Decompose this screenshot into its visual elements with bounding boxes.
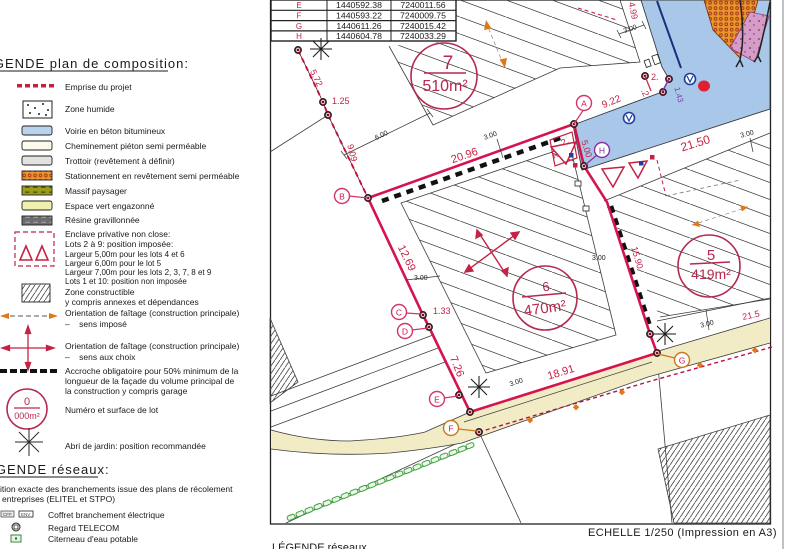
svg-text:2.: 2.	[651, 72, 659, 82]
svg-text:A: A	[581, 99, 587, 109]
svg-text:Accroche obligatoire pour 50%: Accroche obligatoire pour 50% minimum de…	[65, 366, 239, 376]
svg-text:E: E	[296, 1, 301, 10]
svg-text:ENV: ENV	[21, 512, 30, 517]
svg-text:longueur de la façade du volum: longueur de la façade du volume principa…	[65, 376, 234, 386]
svg-text:CFF: CFF	[3, 512, 12, 517]
svg-text:Largeur 6,00m pour le lot 5: Largeur 6,00m pour le lot 5	[65, 259, 162, 268]
svg-text:Stationnement en revêtement se: Stationnement en revêtement semi perméab…	[65, 171, 240, 181]
svg-text:Enclave privative non close:: Enclave privative non close:	[65, 229, 170, 239]
svg-text:1.33: 1.33	[433, 306, 451, 316]
svg-text:Numéro et surface de lot: Numéro et surface de lot	[65, 405, 159, 415]
svg-text:7240011.56: 7240011.56	[400, 0, 445, 10]
svg-text:1440604.78: 1440604.78	[336, 31, 382, 41]
svg-text:ition exacte des branchements: ition exacte des branchements issue des …	[0, 484, 233, 494]
svg-text:ECHELLE 1/250 (Impression en A: ECHELLE 1/250 (Impression en A3)	[588, 527, 777, 539]
svg-text:7: 7	[443, 53, 454, 74]
svg-text:G: G	[296, 22, 302, 31]
svg-text:Abri de jardin: position recom: Abri de jardin: position recommandée	[65, 441, 206, 451]
svg-text:LÉGENDE plan de composition:: LÉGENDE plan de composition:	[0, 56, 189, 71]
svg-text:Regard TELECOM: Regard TELECOM	[48, 523, 119, 533]
svg-text:Lots 1 et 10: position non imp: Lots 1 et 10: position non imposée	[65, 277, 187, 286]
svg-text:E: E	[434, 395, 440, 405]
svg-text:1440593.22: 1440593.22	[336, 11, 382, 21]
svg-text:1440611.26: 1440611.26	[336, 21, 381, 31]
svg-text:3.00: 3.00	[592, 255, 606, 262]
svg-text:LÉGENDE réseaux: LÉGENDE réseaux	[272, 541, 367, 549]
svg-text:entreprises (ELITEL et STPO): entreprises (ELITEL et STPO)	[2, 494, 115, 504]
svg-text:7240033.29: 7240033.29	[400, 31, 446, 41]
svg-text:C: C	[396, 308, 402, 318]
svg-text:Orientation de faîtage (constr: Orientation de faîtage (construction pri…	[65, 341, 240, 351]
svg-text:5: 5	[707, 247, 715, 264]
svg-text:Espace vert engazonné: Espace vert engazonné	[65, 201, 155, 211]
svg-text:Trottoir (revêtement à définir: Trottoir (revêtement à définir)	[65, 156, 175, 166]
svg-text:Cheminement piéton semi perméa: Cheminement piéton semi perméable	[65, 141, 207, 151]
svg-text:1.25: 1.25	[332, 96, 350, 106]
svg-text:0: 0	[24, 396, 30, 408]
svg-text:Zone constructible: Zone constructible	[65, 287, 135, 297]
svg-text:Orientation de faîtage (constr: Orientation de faîtage (construction pri…	[65, 308, 240, 318]
svg-text:– sens imposé: – sens imposé	[65, 319, 127, 329]
svg-text:510m²: 510m²	[422, 78, 468, 95]
svg-text:D: D	[402, 327, 408, 337]
svg-text:000m²: 000m²	[14, 411, 40, 421]
svg-text:1440592.38: 1440592.38	[336, 0, 382, 10]
svg-text:Lots 2 à 9: position imposée:: Lots 2 à 9: position imposée:	[65, 239, 173, 249]
svg-text:7240009.75: 7240009.75	[400, 11, 446, 21]
svg-text:Coffret branchement électrique: Coffret branchement électrique	[48, 510, 165, 520]
svg-text:7240015.42: 7240015.42	[400, 21, 446, 31]
svg-text:LÉGENDE réseaux:: LÉGENDE réseaux:	[0, 462, 110, 477]
svg-text:F: F	[297, 12, 302, 21]
svg-text:Résine gravillonnée: Résine gravillonnée	[65, 215, 140, 225]
svg-text:la construction y compris gara: la construction y compris garage	[65, 386, 188, 396]
svg-text:Zone humide: Zone humide	[65, 104, 115, 114]
svg-text:419m²: 419m²	[691, 266, 731, 282]
svg-text:Voirie en béton bitumineux: Voirie en béton bitumineux	[65, 126, 166, 136]
svg-text:B: B	[339, 192, 345, 202]
svg-text:Largeur 7,00m pour les lots 2,: Largeur 7,00m pour les lots 2, 3, 7, 8 e…	[65, 268, 212, 277]
svg-text:Largeur 5,00m pour les lots 4: Largeur 5,00m pour les lots 4 et 6	[65, 250, 185, 259]
svg-text:Emprise du projet: Emprise du projet	[65, 82, 132, 92]
svg-text:y compris annexes et dépendanc: y compris annexes et dépendances	[65, 297, 199, 307]
svg-text:H: H	[296, 32, 302, 41]
svg-text:Massif paysager: Massif paysager	[65, 186, 127, 196]
svg-text:F: F	[448, 424, 453, 434]
svg-text:– sens aux choix: – sens aux choix	[65, 352, 136, 362]
svg-text:H: H	[599, 146, 605, 156]
svg-text:G: G	[679, 356, 686, 366]
svg-text:Citerneau d'eau potable: Citerneau d'eau potable	[48, 534, 138, 544]
